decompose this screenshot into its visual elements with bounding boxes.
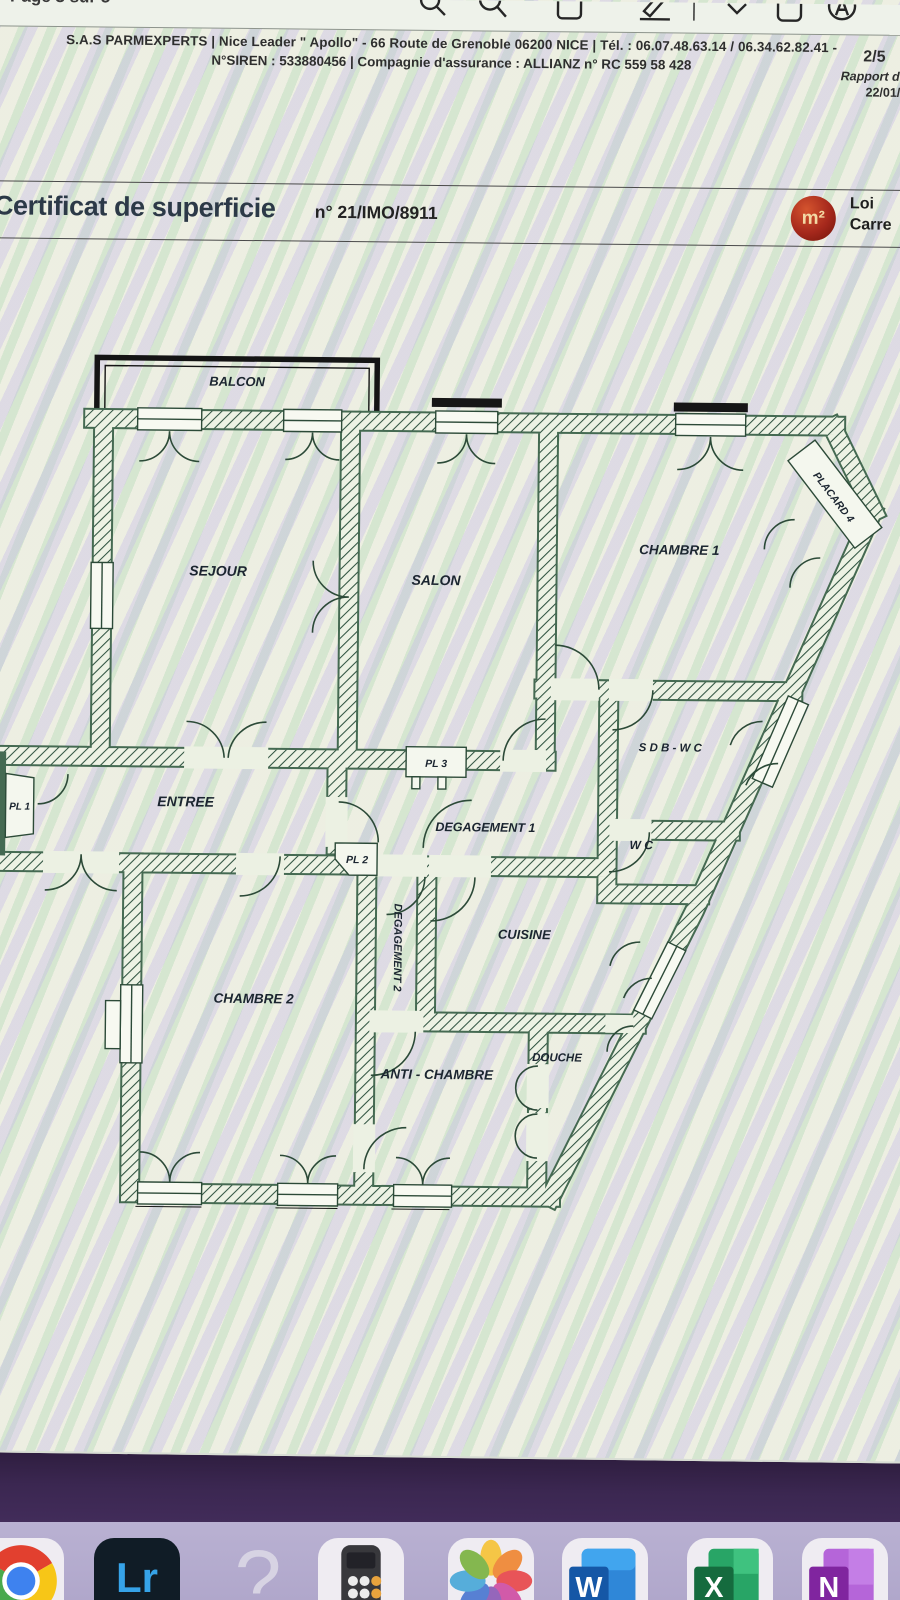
copy-icon[interactable] [558, 0, 581, 18]
dock-item-photos[interactable] [448, 1538, 534, 1600]
dock-item-lightroom[interactable]: Lr [94, 1538, 180, 1600]
title-band: Certificat de superficie n° 21/IMO/8911 … [0, 180, 900, 248]
viewer-toolbar: Page 3 sur 5 [0, 0, 900, 36]
room-label-anti-chambre: ANTI - CHAMBRE [380, 1066, 495, 1082]
room-label-balcon: BALCON [209, 374, 265, 390]
room-label-sejour: SEJOUR [189, 562, 248, 579]
room-label-douche: DOUCHE [532, 1052, 582, 1065]
room-label-chambre1: CHAMBRE 1 [639, 542, 719, 558]
room-label-degagement2: DEGAGEMENT 2 [391, 904, 404, 992]
closets [5, 432, 883, 881]
photographed-screen: Page 3 sur 5 S.A.S PARMEXPERTS | Nice Le… [0, 0, 900, 1600]
report-label: Rapport du [805, 69, 900, 84]
room-label-pl1: PL 1 [9, 802, 30, 813]
calculator-icon [318, 1538, 404, 1600]
m2-badge: m² [791, 196, 836, 241]
chrome-icon [0, 1538, 64, 1600]
report-date: 22/01/202 [805, 85, 900, 100]
law-label: Loi Carre [850, 193, 892, 235]
walls [0, 417, 875, 1200]
dock-item-excel[interactable]: X [687, 1538, 773, 1600]
chevron-down-icon[interactable] [728, 4, 746, 13]
zoom-out-icon[interactable] [421, 0, 445, 15]
markup-pen-icon[interactable] [640, 0, 670, 19]
room-label-sdb-wc: S D B - W C [639, 742, 703, 755]
room-label-entree: ENTREE [157, 793, 215, 810]
dock: Lr ? [0, 1522, 900, 1600]
page-icon[interactable] [778, 0, 801, 21]
room-label-pl3: PL 3 [425, 758, 447, 770]
toolbar-icons [0, 0, 900, 35]
onenote-icon: N [802, 1538, 888, 1600]
svg-text:N: N [819, 1572, 840, 1600]
dock-item-missing-app[interactable]: ? [215, 1538, 295, 1600]
svg-text:X: X [704, 1572, 723, 1600]
room-label-chambre2: CHAMBRE 2 [213, 991, 294, 1007]
page-number: 2/5 [805, 48, 885, 67]
document-title: Certificat de superficie [0, 190, 276, 224]
word-icon: W [562, 1538, 648, 1600]
dock-item-chrome[interactable] [0, 1538, 64, 1600]
dock-item-onenote[interactable]: N [802, 1538, 888, 1600]
document-number: n° 21/IMO/8911 [315, 202, 438, 224]
room-label-degagement1: DEGAGEMENT 1 [435, 820, 535, 835]
pdf-viewer: Page 3 sur 5 S.A.S PARMEXPERTS | Nice Le… [0, 0, 900, 1475]
question-mark-icon: ? [215, 1532, 301, 1600]
svg-text:W: W [575, 1572, 603, 1600]
dock-item-calculator[interactable] [318, 1538, 404, 1600]
floor-plan: BALCON SEJOUR SALON CHAMBRE 1 S D B - W … [0, 325, 899, 1214]
zoom-in-icon[interactable] [480, 0, 506, 17]
dock-item-word[interactable]: W [562, 1538, 648, 1600]
photos-icon [448, 1538, 534, 1600]
document-header: S.A.S PARMEXPERTS | Nice Leader " Apollo… [0, 31, 900, 75]
lightroom-icon: Lr [94, 1538, 180, 1600]
window-sills [135, 395, 748, 1215]
room-label-pl2: PL 2 [346, 854, 368, 866]
room-label-cuisine: CUISINE [498, 927, 551, 943]
excel-icon: X [687, 1538, 773, 1600]
header-meta: 2/5 Rapport du 22/01/202 [805, 48, 900, 100]
room-label-wc: W C [630, 838, 654, 852]
room-label-salon: SALON [411, 572, 461, 589]
